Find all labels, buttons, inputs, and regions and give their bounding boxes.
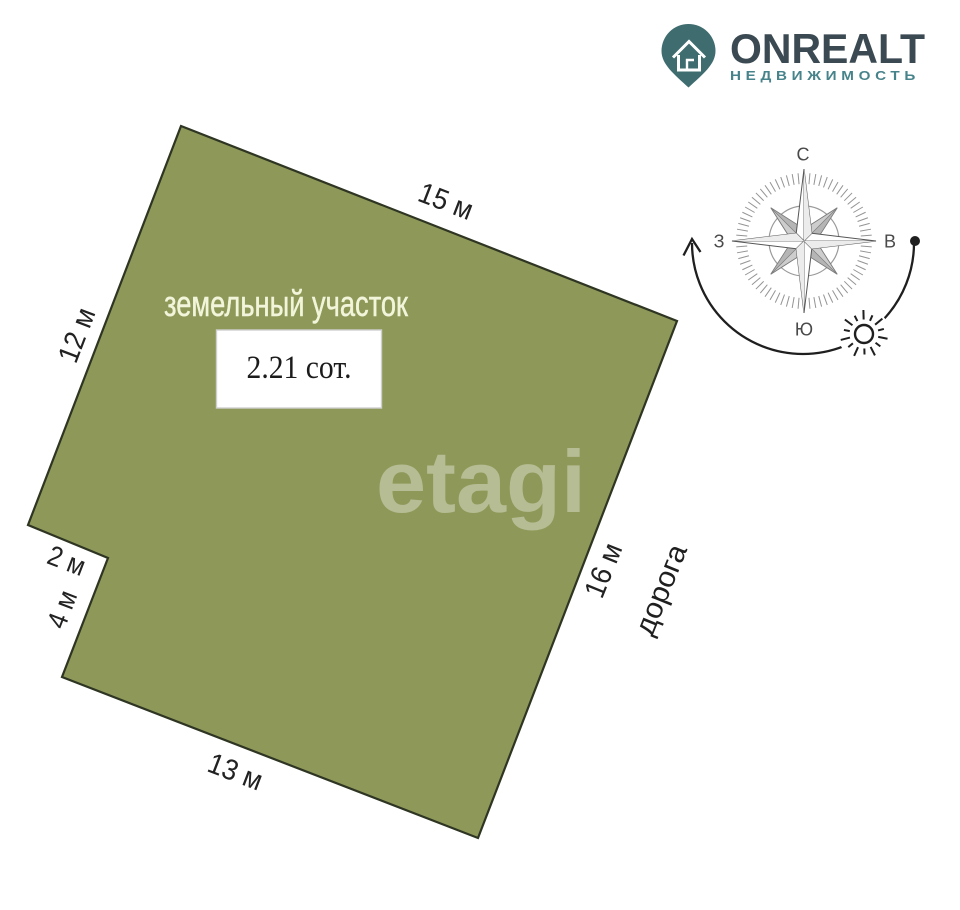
svg-text:etagi: etagi xyxy=(376,432,586,531)
svg-text:С: С xyxy=(797,145,810,165)
svg-text:З: З xyxy=(714,232,725,252)
svg-text:ONREALT: ONREALT xyxy=(730,25,925,72)
svg-text:В: В xyxy=(884,232,896,252)
svg-text:НЕДВИЖИМОСТЬ: НЕДВИЖИМОСТЬ xyxy=(730,68,920,83)
svg-text:земельный участок: земельный участок xyxy=(164,283,408,324)
svg-text:2.21 сот.: 2.21 сот. xyxy=(247,350,352,386)
svg-text:Ю: Ю xyxy=(795,320,813,340)
